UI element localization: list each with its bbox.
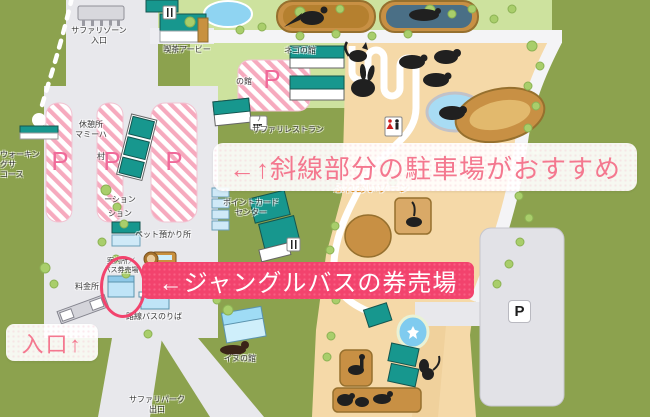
label-rest-house: 休憩所 マミーハ <box>75 120 107 140</box>
walking-course-building <box>20 126 58 139</box>
label-pet-daycare: ペット預かり所 <box>135 230 191 240</box>
label-village: 村 <box>97 152 105 162</box>
label-safari-restaurant: サファリレストラン <box>252 125 324 135</box>
label-walking-course: ウォーキングサ コース <box>0 150 46 180</box>
annotation-parking-recommend: ←↑斜線部分の駐車場がおすすめ <box>213 143 637 191</box>
safari-park-map: サファリゾーン 入口 喫茶アービー 休憩所 マミーハ 村 ウォーキングサ コース… <box>0 0 650 417</box>
entrance-platform <box>78 6 124 26</box>
label-station-1: ーション <box>104 195 136 205</box>
parking-p-2: P <box>103 148 120 174</box>
label-safari-zone-entrance: サファリゾーン 入口 <box>71 26 127 46</box>
label-dog-house: イヌの館 <box>224 354 256 364</box>
parking-p-3: P <box>165 148 182 174</box>
label-station-2: ション <box>108 209 132 219</box>
annotation-entrance: 入口↑ <box>6 324 98 361</box>
fountain <box>398 316 428 348</box>
pond <box>204 1 252 27</box>
annotation-bus-ticket-office: ←ジャングルバスの券売場 <box>142 262 474 299</box>
label-cafe-arby: 喫茶アービー <box>163 45 211 55</box>
label-cat-house: ネコの館 <box>284 46 316 56</box>
label-house-fragment: の館 <box>236 77 252 87</box>
label-safari-park-exit: サファリパーク 出口 <box>129 395 185 415</box>
label-point-card-center: ポイントカード センター <box>223 198 279 218</box>
label-toll-gate: 料金所 <box>75 282 99 292</box>
ticket-office-highlight-circle <box>100 256 146 318</box>
parking-sign-east: P <box>508 300 531 323</box>
bird-silhouette <box>419 359 429 373</box>
restaurant-icon <box>163 6 176 19</box>
parking-p-center: P <box>263 66 280 92</box>
rabbit-house-building <box>290 76 344 100</box>
restaurant-icon-2 <box>287 238 300 251</box>
restroom-icon <box>385 117 402 136</box>
parking-p-1: P <box>51 148 68 174</box>
restaurant-building <box>213 98 251 126</box>
